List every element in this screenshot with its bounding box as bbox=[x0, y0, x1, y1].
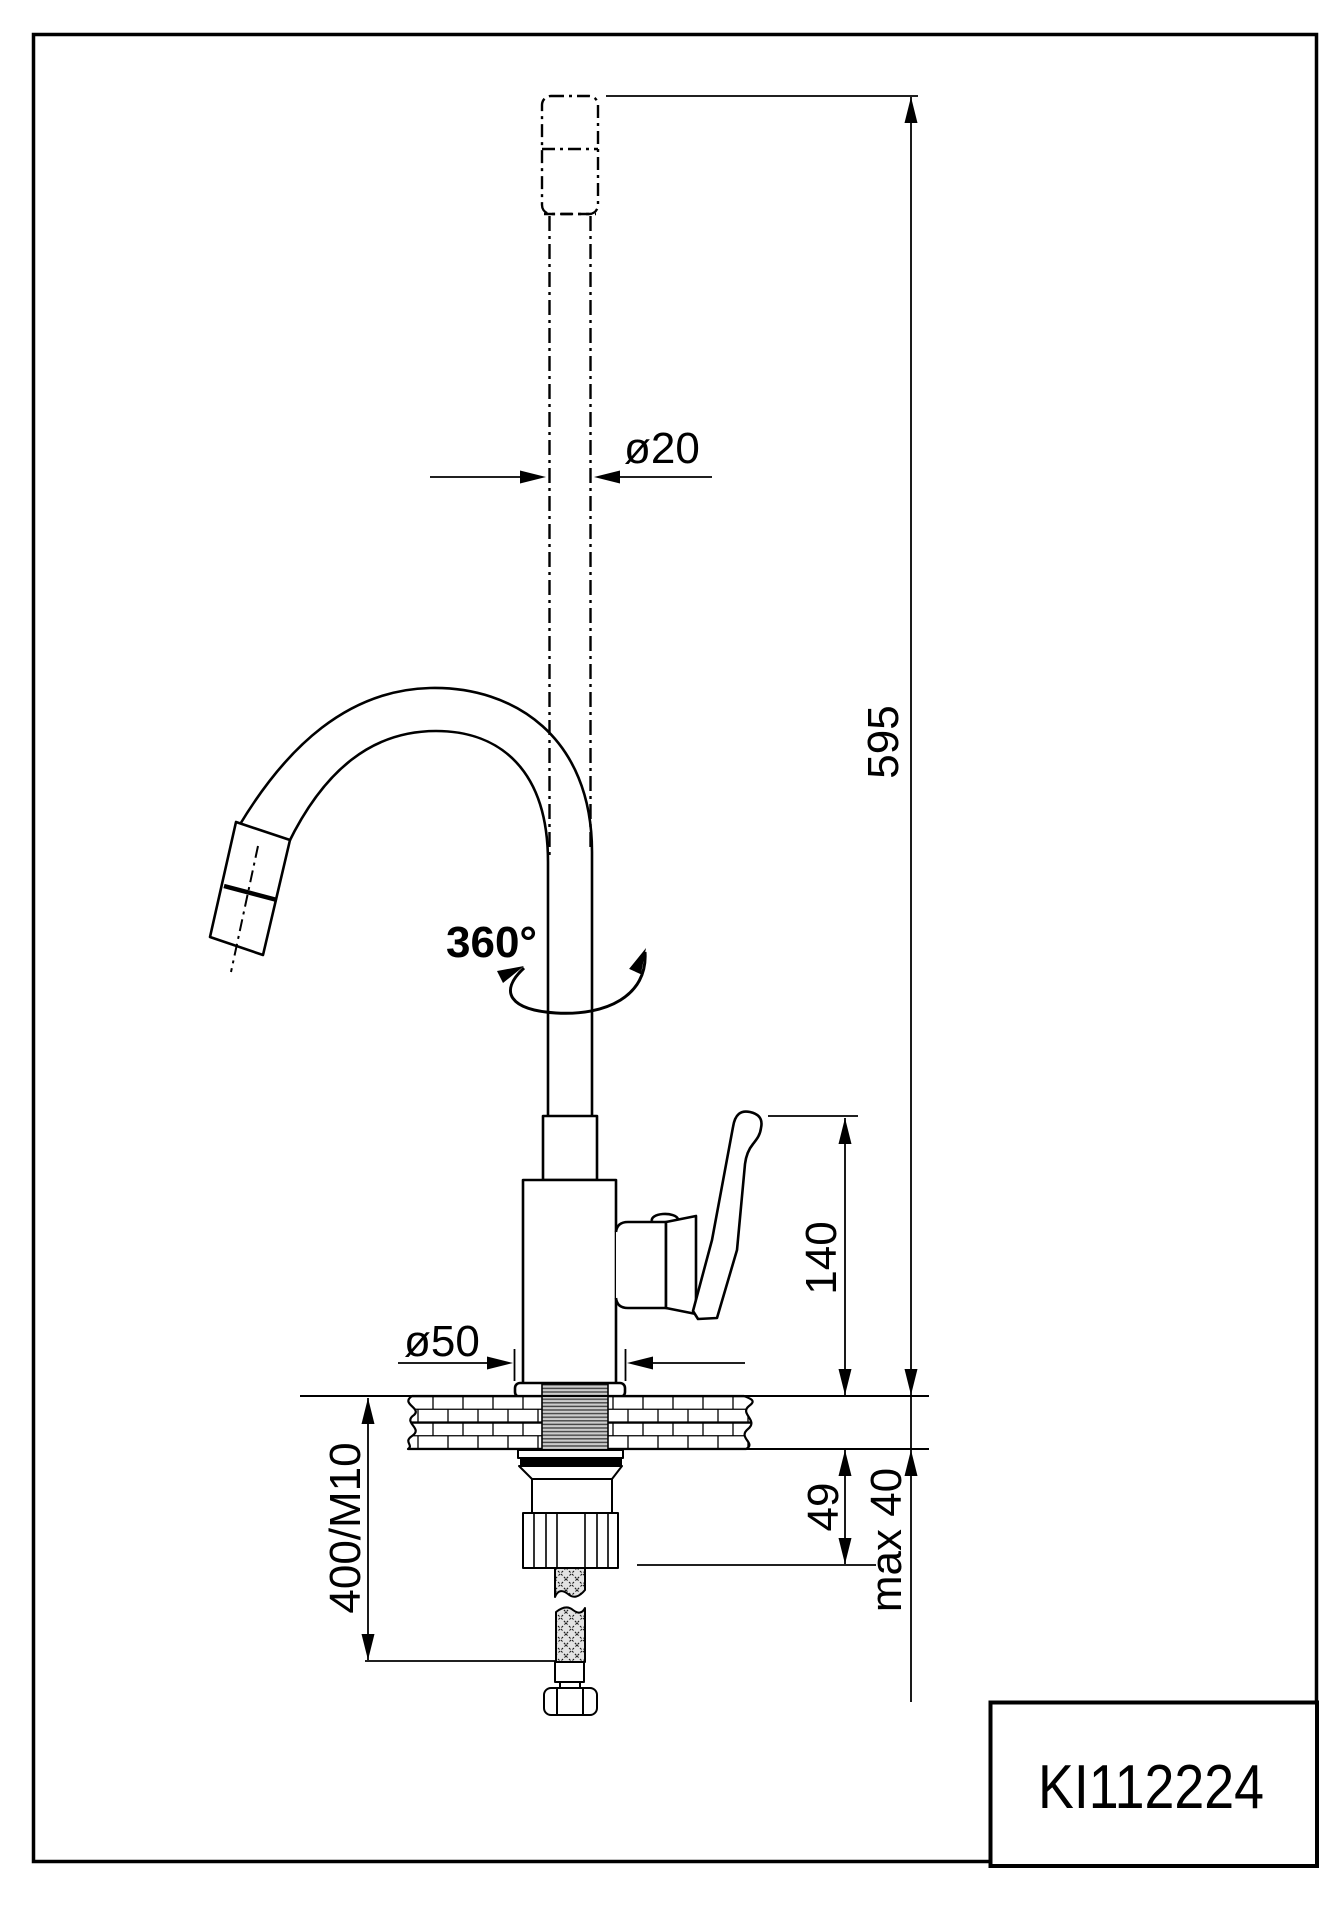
mounting-nut bbox=[523, 1513, 618, 1568]
label-max-thickness: max 40 bbox=[862, 1468, 911, 1612]
supply-hose-lower bbox=[556, 1607, 585, 1662]
label-outlet-height: 140 bbox=[797, 1221, 846, 1294]
washer bbox=[518, 1450, 623, 1458]
cone-washer bbox=[519, 1466, 622, 1479]
label-total-height: 595 bbox=[859, 705, 908, 778]
label-shank-length: 49 bbox=[799, 1483, 848, 1532]
shank-cylinder bbox=[532, 1479, 612, 1513]
technical-drawing-page: ø20 595 360° 140 ø50 400/M10 49 max 40 K… bbox=[0, 0, 1344, 1900]
cartridge-housing bbox=[616, 1222, 666, 1308]
hose-end-nut bbox=[544, 1688, 597, 1715]
product-code: KI112224 bbox=[1038, 1753, 1264, 1822]
faucet-installation-drawing: ø20 595 360° 140 ø50 400/M10 49 max 40 K… bbox=[0, 0, 1344, 1900]
rubber-gasket bbox=[521, 1458, 621, 1466]
drawing-frame bbox=[34, 35, 1317, 1862]
hose-collar bbox=[555, 1662, 584, 1682]
faucet-body bbox=[523, 1180, 616, 1384]
label-swivel-angle: 360° bbox=[446, 918, 537, 967]
cartridge bbox=[666, 1216, 696, 1314]
title-block: KI112224 bbox=[991, 1703, 1318, 1867]
label-spout-diameter: ø20 bbox=[624, 424, 700, 473]
label-base-diameter: ø50 bbox=[404, 1317, 480, 1366]
label-hose-length: 400/M10 bbox=[321, 1442, 370, 1613]
riser-collar bbox=[543, 1116, 597, 1180]
